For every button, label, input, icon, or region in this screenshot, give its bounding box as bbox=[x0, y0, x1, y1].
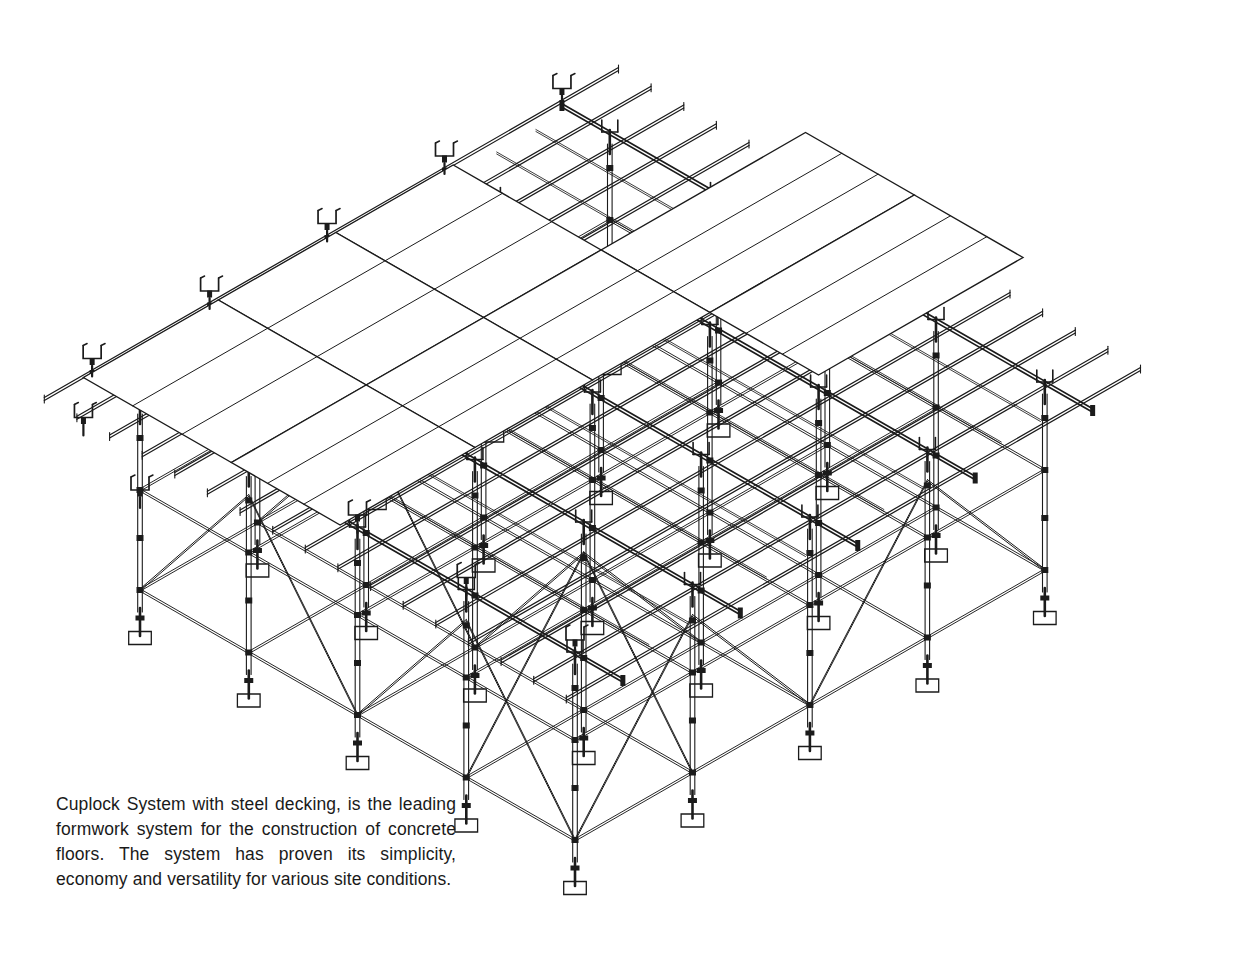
page: Cuplock System with steel decking, is th… bbox=[0, 0, 1237, 973]
figure-caption: Cuplock System with steel decking, is th… bbox=[56, 792, 456, 892]
steel-deck-panels bbox=[83, 133, 1023, 526]
